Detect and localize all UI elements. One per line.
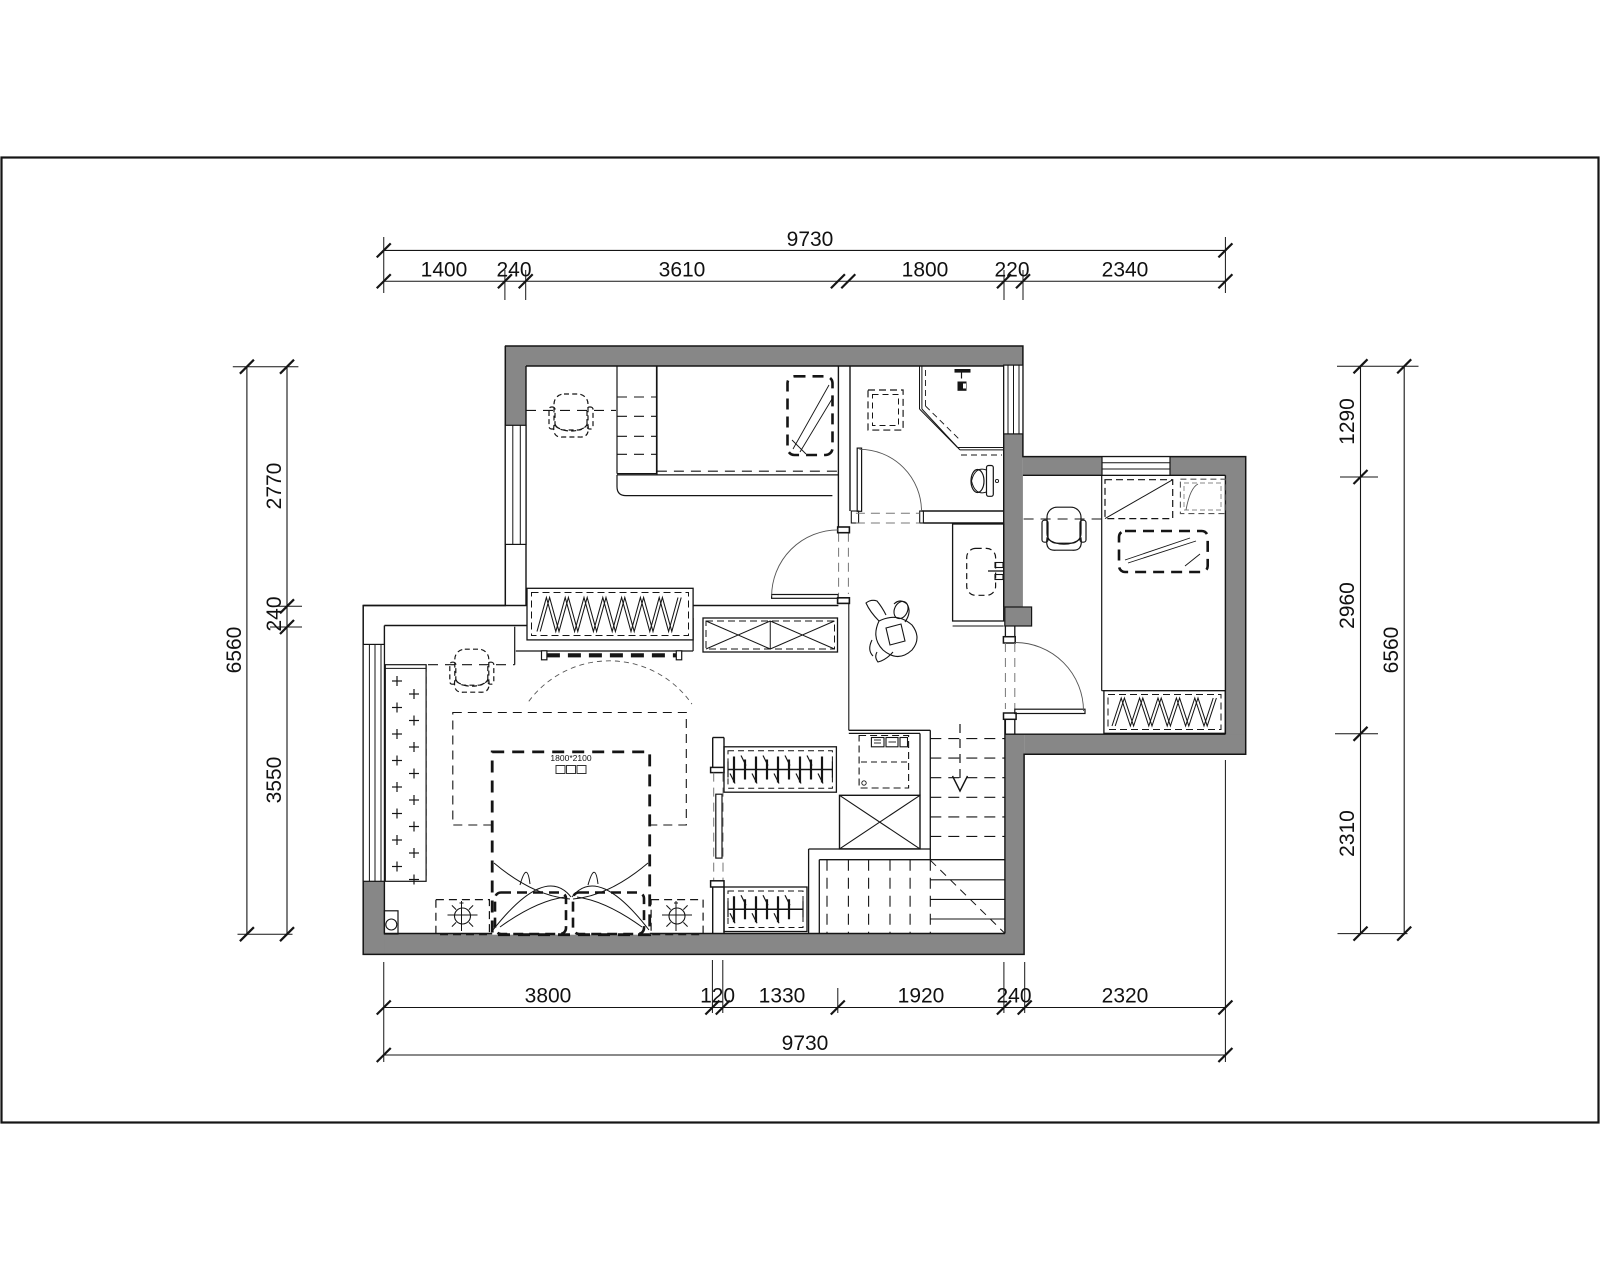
- svg-text:3800: 3800: [525, 985, 572, 1008]
- svg-text:3610: 3610: [659, 259, 706, 282]
- svg-text:240: 240: [263, 596, 286, 631]
- svg-text:1330: 1330: [759, 985, 806, 1008]
- svg-text:3550: 3550: [263, 757, 286, 804]
- svg-text:240: 240: [996, 985, 1031, 1008]
- svg-text:2320: 2320: [1102, 985, 1149, 1008]
- svg-text:120: 120: [700, 985, 735, 1008]
- svg-text:2770: 2770: [263, 463, 286, 510]
- svg-text:1400: 1400: [421, 259, 468, 282]
- svg-text:6560: 6560: [1380, 627, 1403, 674]
- svg-text:240: 240: [496, 259, 531, 282]
- svg-text:2960: 2960: [1336, 582, 1359, 629]
- svg-text:1920: 1920: [898, 985, 945, 1008]
- svg-text:2340: 2340: [1102, 259, 1149, 282]
- svg-text:9730: 9730: [787, 228, 834, 251]
- svg-text:1290: 1290: [1336, 398, 1359, 445]
- svg-text:1800*2100: 1800*2100: [550, 753, 591, 763]
- svg-text:6560: 6560: [223, 627, 246, 674]
- svg-text:1800: 1800: [902, 259, 949, 282]
- svg-text:2310: 2310: [1336, 810, 1359, 857]
- svg-text:9730: 9730: [782, 1032, 829, 1055]
- svg-text:220: 220: [994, 259, 1029, 282]
